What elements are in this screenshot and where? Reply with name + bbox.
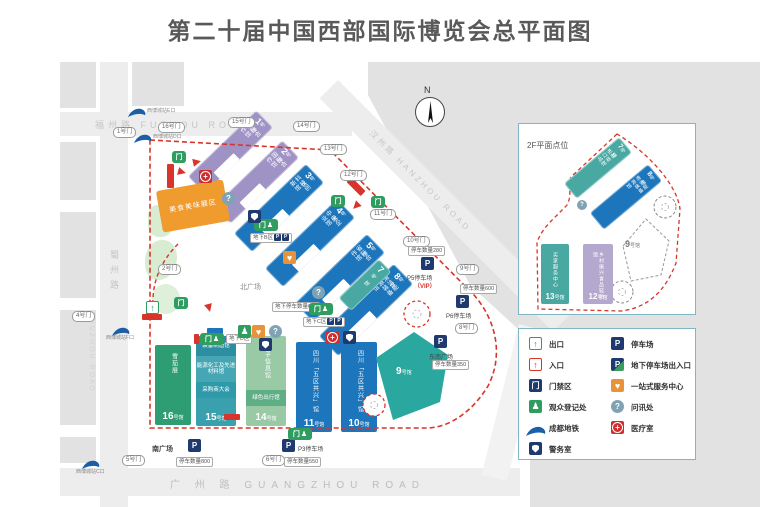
underground-parking-icon: P — [611, 358, 624, 371]
medical-icon: + — [611, 421, 624, 434]
south-plaza-label: 南广场 — [152, 444, 173, 454]
metro-icon — [134, 130, 152, 148]
exit-icon: ↑ — [529, 337, 542, 350]
gate-16: 16号门 — [158, 122, 185, 133]
inset-hall-9-label: 9号馆 — [625, 239, 640, 249]
p5-count: 停车数量280 — [408, 246, 445, 256]
visitor-registration-icon: ♟ — [529, 400, 542, 413]
compass-icon — [415, 97, 445, 127]
gate-15: 15号门 — [228, 117, 255, 128]
visitor-registration-icon: ♟ — [238, 325, 251, 338]
legend-parking-label: 停车场 — [631, 339, 654, 350]
gate-14: 14号门 — [293, 121, 320, 132]
legend-entrance-label: 入口 — [549, 360, 564, 371]
metro-icon — [526, 423, 546, 441]
p3-label: P3停车场 — [298, 444, 323, 453]
access-gate-icon: 门 — [331, 195, 345, 207]
police-icon — [259, 338, 272, 351]
gate-13: 13号门 — [320, 144, 347, 155]
access-gate-icon: 门♟ — [200, 333, 224, 345]
legend-panel: ↑ 出口 ↑ 入口 门 门禁区 ♟ 观众登记处 成都地铁 警务室 P 停车场 P… — [518, 328, 696, 460]
legend-gate-zone-label: 门禁区 — [549, 381, 572, 392]
entrance-bar — [142, 314, 162, 320]
legend-register-label: 观众登记处 — [549, 402, 587, 413]
medical-icon: + — [199, 170, 212, 183]
metro-c-label: 西博城站C口 — [76, 468, 105, 475]
police-icon — [529, 442, 542, 455]
p6-label: P6停车场 — [446, 311, 471, 320]
police-icon — [248, 210, 261, 223]
zone-c-label: 地下C区PP — [303, 317, 345, 327]
entrance-bar — [167, 164, 174, 188]
metro-f-label: 西博城站F口 — [106, 334, 134, 341]
inset-hall-13-name: 买家服务中心 — [552, 252, 558, 288]
exit-icon: ↑ — [146, 301, 159, 314]
hall-9-label: 9号馆 — [396, 366, 412, 377]
info-desk-icon: ? — [269, 325, 282, 338]
gate-8: 8号门 — [455, 323, 478, 334]
legend-metro-label: 成都地铁 — [549, 423, 579, 434]
se-parking-icon: P — [434, 335, 447, 348]
p5-vip-label: （VIP） — [414, 281, 436, 290]
expo-master-plan-map: 第二十届中国西部国际博览会总平面图 汉州路 HANZHOU ROAD 福州路 F… — [0, 0, 760, 507]
access-gate-icon: 门 — [172, 151, 186, 163]
p3-count: 停车数量550 — [284, 457, 321, 467]
gate-4: 4号门 — [72, 311, 95, 322]
compass-north-label: N — [424, 85, 431, 95]
inset-hall-13-label: 13号馆 — [541, 292, 569, 301]
info-desk-icon: ? — [222, 192, 235, 205]
north-plaza-label: 北广场 — [240, 282, 261, 292]
gate-12: 12号门 — [340, 170, 367, 181]
legend-info-label: 问讯处 — [631, 402, 654, 413]
page-title: 第二十届中国西部国际博览会总平面图 — [0, 12, 760, 46]
inset-hall-12: 乡村振兴食品轻纺馆 12号馆 — [583, 244, 613, 304]
legend-police-label: 警务室 — [549, 444, 572, 455]
access-gate-icon: 门♟ — [288, 428, 312, 440]
legend-underground-parking-label: 地下停车场出入口 — [631, 360, 691, 371]
gate-6: 6号门 — [262, 455, 285, 466]
access-gate-icon: 门 — [371, 196, 385, 208]
se-count: 停车数量350 — [432, 360, 469, 370]
legend-medical-label: 医疗室 — [631, 423, 654, 434]
entrance-bar — [194, 334, 199, 344]
info-desk-icon: ? — [312, 286, 325, 299]
south-parking-icon: P — [188, 439, 201, 452]
gate-11: 11号门 — [370, 209, 396, 220]
inset-hall-12-label: 12号馆 — [583, 292, 613, 301]
metro-icon — [128, 104, 146, 122]
south-count: 停车数量800 — [176, 457, 213, 467]
inset-hall-13: 买家服务中心 13号馆 — [541, 244, 569, 304]
metro-e-label: 西博城站E口 — [147, 107, 175, 114]
gate-1: 1号门 — [113, 127, 136, 138]
p6-parking-icon: P — [456, 295, 469, 308]
zone-b-label: 地下B区PP — [250, 233, 292, 243]
gate-5: 5号门 — [122, 455, 145, 466]
access-gate-icon: 门 — [174, 297, 188, 309]
one-stop-service-icon: ♥ — [252, 325, 265, 338]
entrance-bar — [224, 414, 240, 420]
police-icon — [343, 331, 356, 344]
p3-parking-icon: P — [282, 439, 295, 452]
gate-9: 9号门 — [456, 264, 479, 275]
inset-info-desk-icon: ? — [577, 200, 587, 210]
gate-zone-icon: 门 — [529, 379, 542, 392]
access-gate-icon: 门♟ — [309, 303, 333, 315]
info-desk-icon: ? — [611, 400, 624, 413]
p5-parking-icon: P — [421, 257, 434, 270]
p6-count: 停车数量600 — [460, 284, 497, 294]
parking-icon: P — [611, 337, 624, 350]
metro-d-label: 西博城站D口 — [153, 133, 182, 140]
legend-exit-label: 出口 — [549, 339, 564, 350]
inset-2f-panel: 2F平面点位 7号馆 进出口商品馆 8号馆 清洁能源装备馆 ? 买家服务中心 1… — [518, 123, 696, 315]
entrance-arrow — [192, 157, 201, 166]
gate-2: 2号门 — [158, 264, 181, 275]
one-stop-service-icon: ♥ — [611, 379, 624, 392]
medical-icon: + — [326, 331, 339, 344]
legend-onestop-label: 一站式服务中心 — [631, 381, 684, 392]
one-stop-service-icon: ♥ — [283, 251, 296, 264]
entrance-icon: ↑ — [529, 358, 542, 371]
